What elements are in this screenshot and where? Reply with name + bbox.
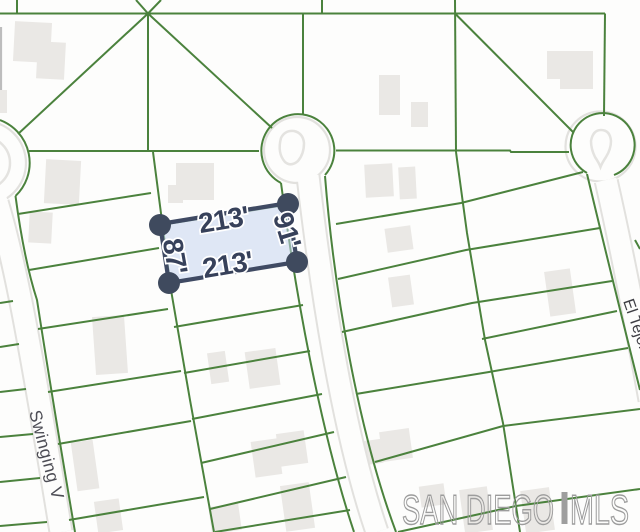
svg-text:MLS: MLS <box>570 486 629 532</box>
svg-text:SAN DIEGO: SAN DIEGO <box>402 486 554 532</box>
svg-text:87': 87' <box>157 236 194 276</box>
